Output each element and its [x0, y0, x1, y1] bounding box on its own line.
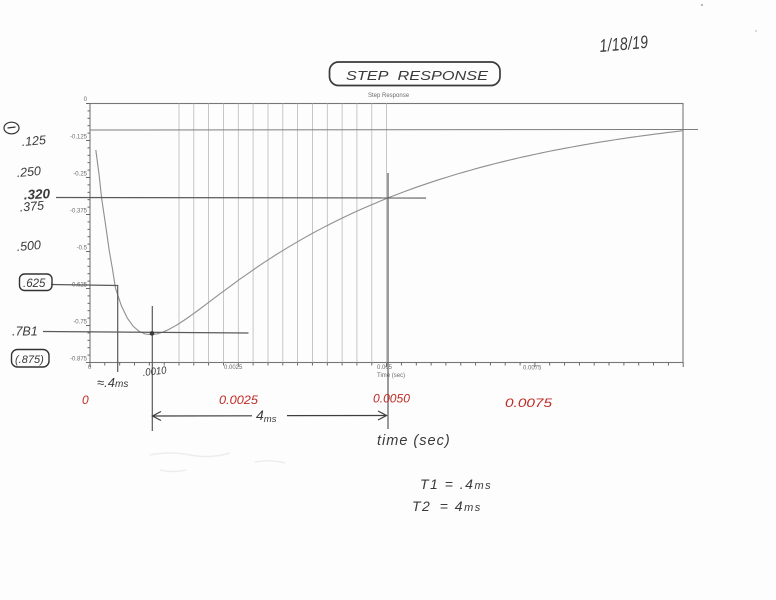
svg-text:time (sec): time (sec): [377, 433, 451, 449]
svg-text:-0.25: -0.25: [73, 172, 87, 178]
svg-text:STEP RESPONSE: STEP RESPONSE: [346, 68, 488, 83]
svg-text:.500: .500: [16, 238, 42, 254]
svg-text:0.005: 0.005: [377, 365, 393, 371]
svg-text:-0.75: -0.75: [73, 320, 87, 326]
svg-text:0.0075: 0.0075: [505, 396, 552, 410]
svg-text:.7B1: .7B1: [12, 325, 38, 339]
svg-text:-0.5: -0.5: [77, 246, 88, 252]
svg-text:.0010: .0010: [142, 365, 167, 379]
svg-text:0: 0: [82, 393, 89, 407]
svg-text:.625: .625: [23, 278, 46, 290]
svg-text:-0.375: -0.375: [70, 209, 88, 215]
svg-text:.250: .250: [16, 164, 42, 180]
svg-text:0.0075: 0.0075: [523, 366, 542, 372]
svg-text:-0.875: -0.875: [70, 357, 88, 363]
svg-text:Step Response: Step Response: [368, 93, 410, 99]
svg-text:Time (sec): Time (sec): [377, 373, 405, 379]
svg-text:0.0025: 0.0025: [224, 365, 243, 371]
svg-text:.125: .125: [21, 133, 47, 149]
svg-text:0.0050: 0.0050: [373, 394, 411, 406]
svg-text:-0.125: -0.125: [70, 135, 88, 141]
svg-text:(.875): (.875): [15, 354, 44, 366]
svg-text:1/18/19: 1/18/19: [599, 32, 650, 56]
svg-text:0.0025: 0.0025: [219, 395, 259, 407]
svg-text:.375: .375: [19, 198, 45, 214]
